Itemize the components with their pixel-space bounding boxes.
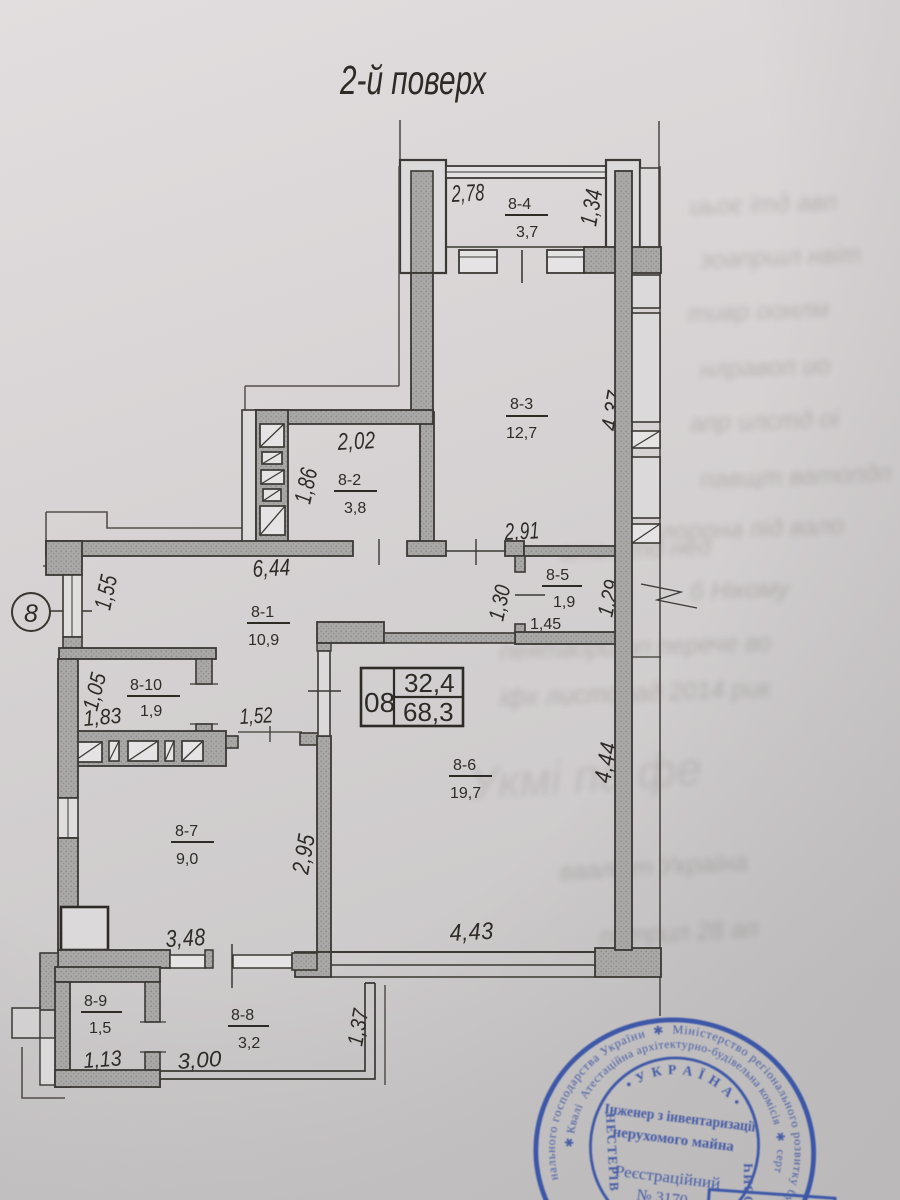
svg-text:4,43: 4,43 [449,918,494,947]
svg-text:1,9: 1,9 [140,703,162,720]
svg-text:19,7: 19,7 [450,785,481,802]
svg-text:3,00: 3,00 [177,1046,223,1074]
svg-text:1,13: 1,13 [83,1045,123,1073]
svg-text:нлравоп ио: нлравоп ио [699,351,831,384]
svg-text:апр илстд оі: апр илстд оі [689,405,841,438]
svg-text:3,7: 3,7 [516,224,538,241]
svg-text:8-6: 8-6 [453,757,476,774]
svg-text:8-1: 8-1 [251,604,274,621]
svg-text:3,48: 3,48 [165,924,206,953]
svg-text:08: 08 [364,687,395,718]
svg-text:б Нікому: б Нікому [689,574,791,606]
svg-text:8: 8 [24,600,38,628]
svg-text:1,83: 1,83 [82,703,123,731]
svg-text:зоапршл нвіт: зоапршл нвіт [698,240,861,274]
svg-text:1,5: 1,5 [89,1020,111,1037]
svg-text:ЬОВИЧ: ЬОВИЧ [741,1162,756,1200]
svg-text:1,45: 1,45 [530,616,561,633]
svg-text:2,78: 2,78 [450,179,485,208]
svg-text:10,9: 10,9 [248,632,279,649]
svg-text:32,4: 32,4 [404,668,455,698]
svg-text:12,7: 12,7 [506,425,537,442]
svg-text:3,2: 3,2 [238,1035,260,1052]
svg-text:8-7: 8-7 [175,823,198,840]
svg-text:8-3: 8-3 [510,396,533,413]
svg-text:8-5: 8-5 [546,567,569,584]
svg-text:тивр оонлм: тивр оонлм [687,295,829,328]
svg-text:9,0: 9,0 [176,851,198,868]
svg-text:8-10: 8-10 [130,677,162,694]
svg-text:2,02: 2,02 [336,427,376,456]
svg-text:8-9: 8-9 [84,993,107,1010]
svg-text:8-2: 8-2 [338,472,361,489]
svg-text:иьоє їтд авп: иьоє їтд авп [689,188,838,221]
svg-text:1,52: 1,52 [239,702,273,729]
svg-text:8-4: 8-4 [508,196,531,213]
svg-text:2-й поверх: 2-й поверх [339,57,487,103]
svg-text:6,44: 6,44 [252,554,291,583]
svg-text:1,9: 1,9 [553,594,575,611]
svg-text:68,3: 68,3 [403,697,454,727]
svg-text:3,8: 3,8 [344,500,366,517]
svg-text:8-8: 8-8 [231,1007,254,1024]
